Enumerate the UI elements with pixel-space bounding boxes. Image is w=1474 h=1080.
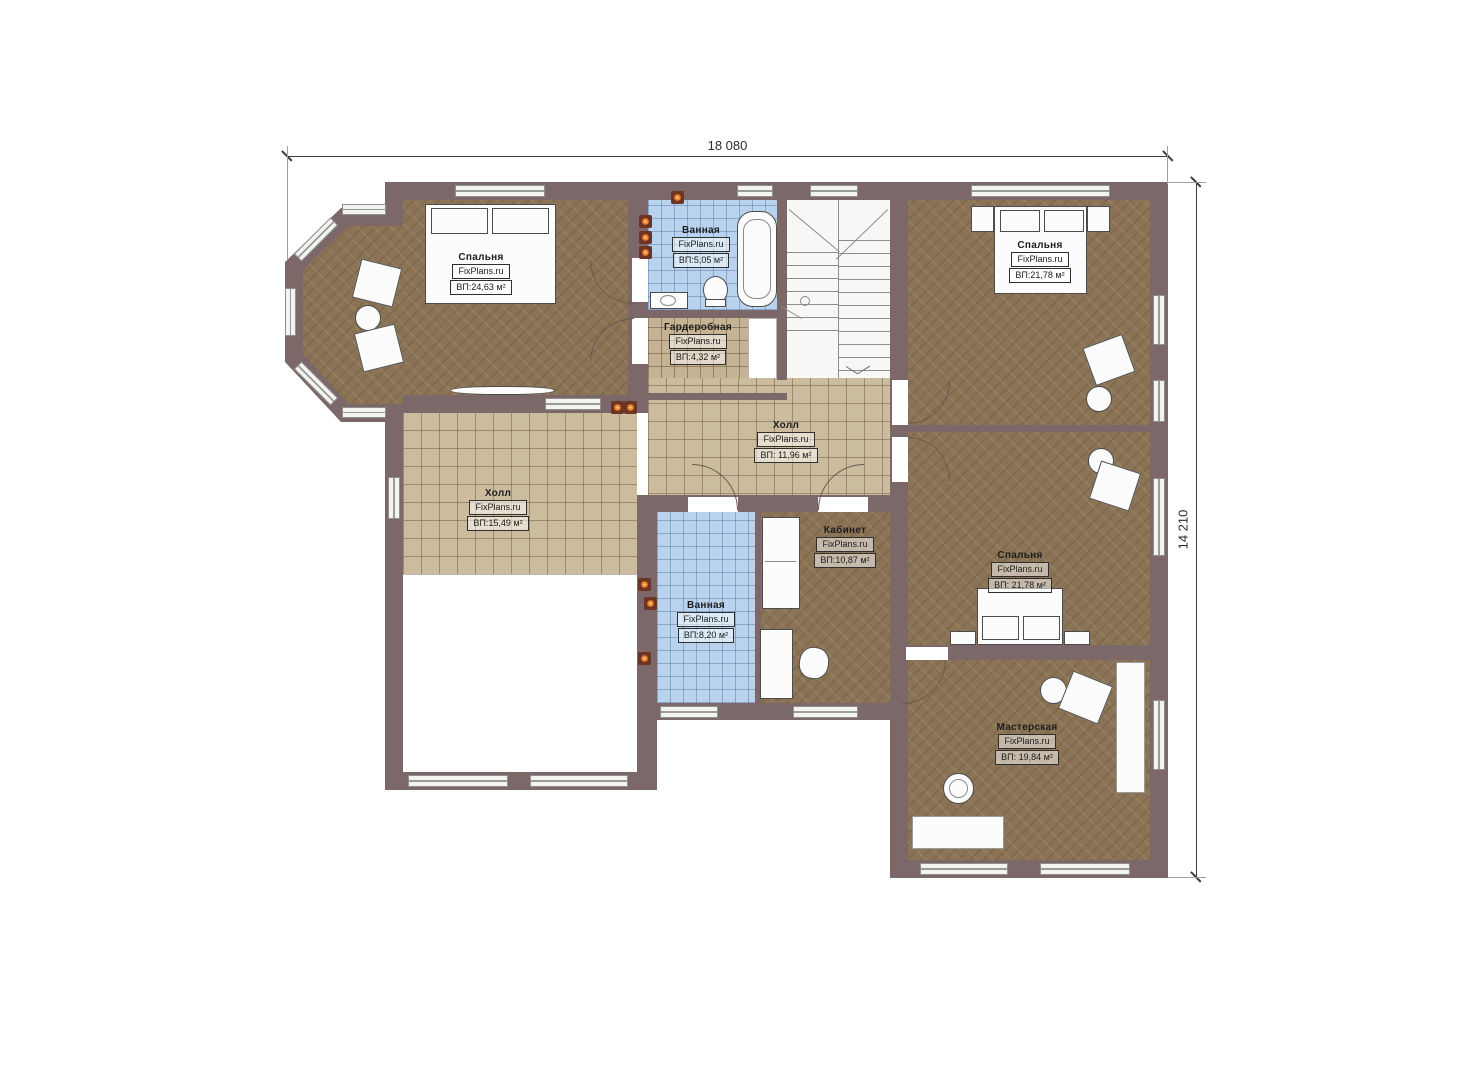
watermark: FixPlans.ru (672, 237, 729, 252)
watermark: FixPlans.ru (677, 612, 734, 627)
stair-treads-right (839, 240, 890, 378)
pillow (982, 616, 1019, 640)
cabinet (1116, 662, 1145, 793)
wall-stairs-left (777, 200, 787, 380)
nightstand (950, 631, 976, 645)
window (793, 706, 858, 718)
radiator-marker-icon (624, 401, 637, 414)
wall-bedrooms-separator (908, 425, 1150, 432)
floor-edge-line (403, 574, 637, 575)
pillow (492, 208, 549, 234)
watermark: FixPlans.ru (1011, 252, 1068, 267)
window (1040, 863, 1130, 875)
room-area: ВП: 11,96 м² (754, 448, 817, 463)
radiator-marker-icon (638, 652, 651, 665)
window (737, 185, 773, 197)
room-name: Мастерская (996, 722, 1057, 733)
watermark: FixPlans.ru (452, 264, 509, 279)
pillow (1023, 616, 1060, 640)
floor-plan: Спальня FixPlans.ru ВП:24,63 м² Ванная F… (0, 0, 1474, 1080)
room-name: Холл (773, 420, 799, 431)
window (971, 185, 1110, 197)
watermark: FixPlans.ru (469, 500, 526, 515)
room-name: Ванная (682, 225, 720, 236)
room-name: Холл (485, 488, 511, 499)
door-opening (906, 647, 948, 660)
extension-line (287, 146, 288, 260)
room-label-workshop: Мастерская FixPlans.ru ВП: 19,84 м² (975, 722, 1079, 765)
wall-bath-wardrobe (648, 310, 777, 318)
room-area: ВП:4,32 м² (670, 350, 726, 365)
sink-bowl (660, 295, 676, 306)
dimension-height-label: 14 210 (1176, 495, 1191, 565)
workbench (912, 816, 1004, 849)
radiator-marker-icon (639, 215, 652, 228)
radiator-marker-icon (644, 597, 657, 610)
dimension-width-label: 18 080 (287, 138, 1168, 153)
floor-empty-room (403, 575, 637, 772)
room-name: Гардеробная (664, 322, 732, 333)
stair-treads-left (787, 252, 838, 334)
door-opening (892, 380, 908, 425)
window (1153, 295, 1165, 345)
bay-window (342, 407, 386, 418)
pillow (1000, 210, 1040, 232)
room-area: ВП:8,20 м² (678, 628, 734, 643)
room-label-hall-center: Холл FixPlans.ru ВП: 11,96 м² (738, 420, 834, 463)
pillow (1044, 210, 1084, 232)
radiator-marker-icon (639, 246, 652, 259)
room-area: ВП:24,63 м² (450, 280, 511, 295)
watermark: FixPlans.ru (757, 432, 814, 447)
round-table (1086, 386, 1112, 412)
window (530, 775, 628, 787)
nightstand (1064, 631, 1090, 645)
room-label-office: Кабинет FixPlans.ru ВП:10,87 м² (797, 525, 893, 568)
window (660, 706, 718, 718)
window (1153, 478, 1165, 556)
room-area: ВП: 19,84 м² (995, 750, 1059, 765)
room-area: ВП:10,87 м² (814, 553, 875, 568)
window (545, 398, 601, 410)
room-label-bedroom-mid-right: Спальня FixPlans.ru ВП: 21,78 м² (974, 550, 1066, 593)
room-name: Спальня (997, 550, 1042, 561)
room-name: Ванная (687, 600, 725, 611)
window (408, 775, 508, 787)
sofa-cushion-line (765, 561, 796, 562)
watermark: FixPlans.ru (669, 334, 726, 349)
extension-line (1168, 182, 1206, 183)
nightstand (971, 206, 994, 232)
room-area: ВП: 21,78 м² (988, 578, 1052, 593)
room-name: Кабинет (824, 525, 867, 536)
dimension-line-top (287, 156, 1168, 157)
shelf (450, 386, 555, 395)
door-opening (892, 437, 908, 482)
extension-line (1168, 877, 1206, 878)
radiator-marker-icon (638, 578, 651, 591)
radiator-marker-icon (639, 231, 652, 244)
sofa (762, 517, 800, 609)
room-area: ВП:5,05 м² (673, 253, 729, 268)
wall-left-lower (385, 412, 403, 790)
watermark: FixPlans.ru (991, 562, 1048, 577)
stair-post (800, 296, 810, 306)
room-area: ВП:21,78 м² (1009, 268, 1070, 283)
radiator-marker-icon (611, 401, 624, 414)
desk (760, 629, 793, 699)
room-label-bedroom-top-right: Спальня FixPlans.ru ВП:21,78 м² (992, 240, 1088, 283)
room-name: Спальня (458, 252, 503, 263)
room-label-bathroom-middle: Ванная FixPlans.ru ВП:8,20 м² (660, 600, 752, 643)
window (455, 185, 545, 197)
bay-window (342, 204, 386, 215)
stove-pot-inner (949, 779, 968, 798)
room-label-hall-left: Холл FixPlans.ru ВП:15,49 м² (450, 488, 546, 531)
room-label-bathroom-top: Ванная FixPlans.ru ВП:5,05 м² (658, 225, 744, 268)
window (1153, 700, 1165, 770)
room-name: Спальня (1017, 240, 1062, 251)
bay-window (285, 288, 296, 336)
radiator-marker-icon (671, 191, 684, 204)
room-area: ВП:15,49 м² (467, 516, 528, 531)
window (810, 185, 858, 197)
window (388, 477, 400, 519)
wall-bathroom-mid-left (637, 495, 657, 772)
wall-left-upper (385, 200, 403, 222)
dimension-line-right (1196, 182, 1197, 878)
watermark: FixPlans.ru (816, 537, 873, 552)
door-opening (632, 318, 648, 364)
toilet-tank (705, 299, 726, 307)
window (1153, 380, 1165, 422)
pillow (431, 208, 488, 234)
wall-wardrobe-bottom (648, 393, 787, 400)
door-opening (632, 258, 648, 302)
bathtub-inner (743, 219, 771, 299)
nightstand (1087, 206, 1110, 232)
room-label-wardrobe: Гардеробная FixPlans.ru ВП:4,32 м² (654, 322, 742, 365)
watermark: FixPlans.ru (998, 734, 1055, 749)
window (920, 863, 1008, 875)
room-label-bedroom-top-left: Спальня FixPlans.ru ВП:24,63 м² (433, 252, 529, 295)
